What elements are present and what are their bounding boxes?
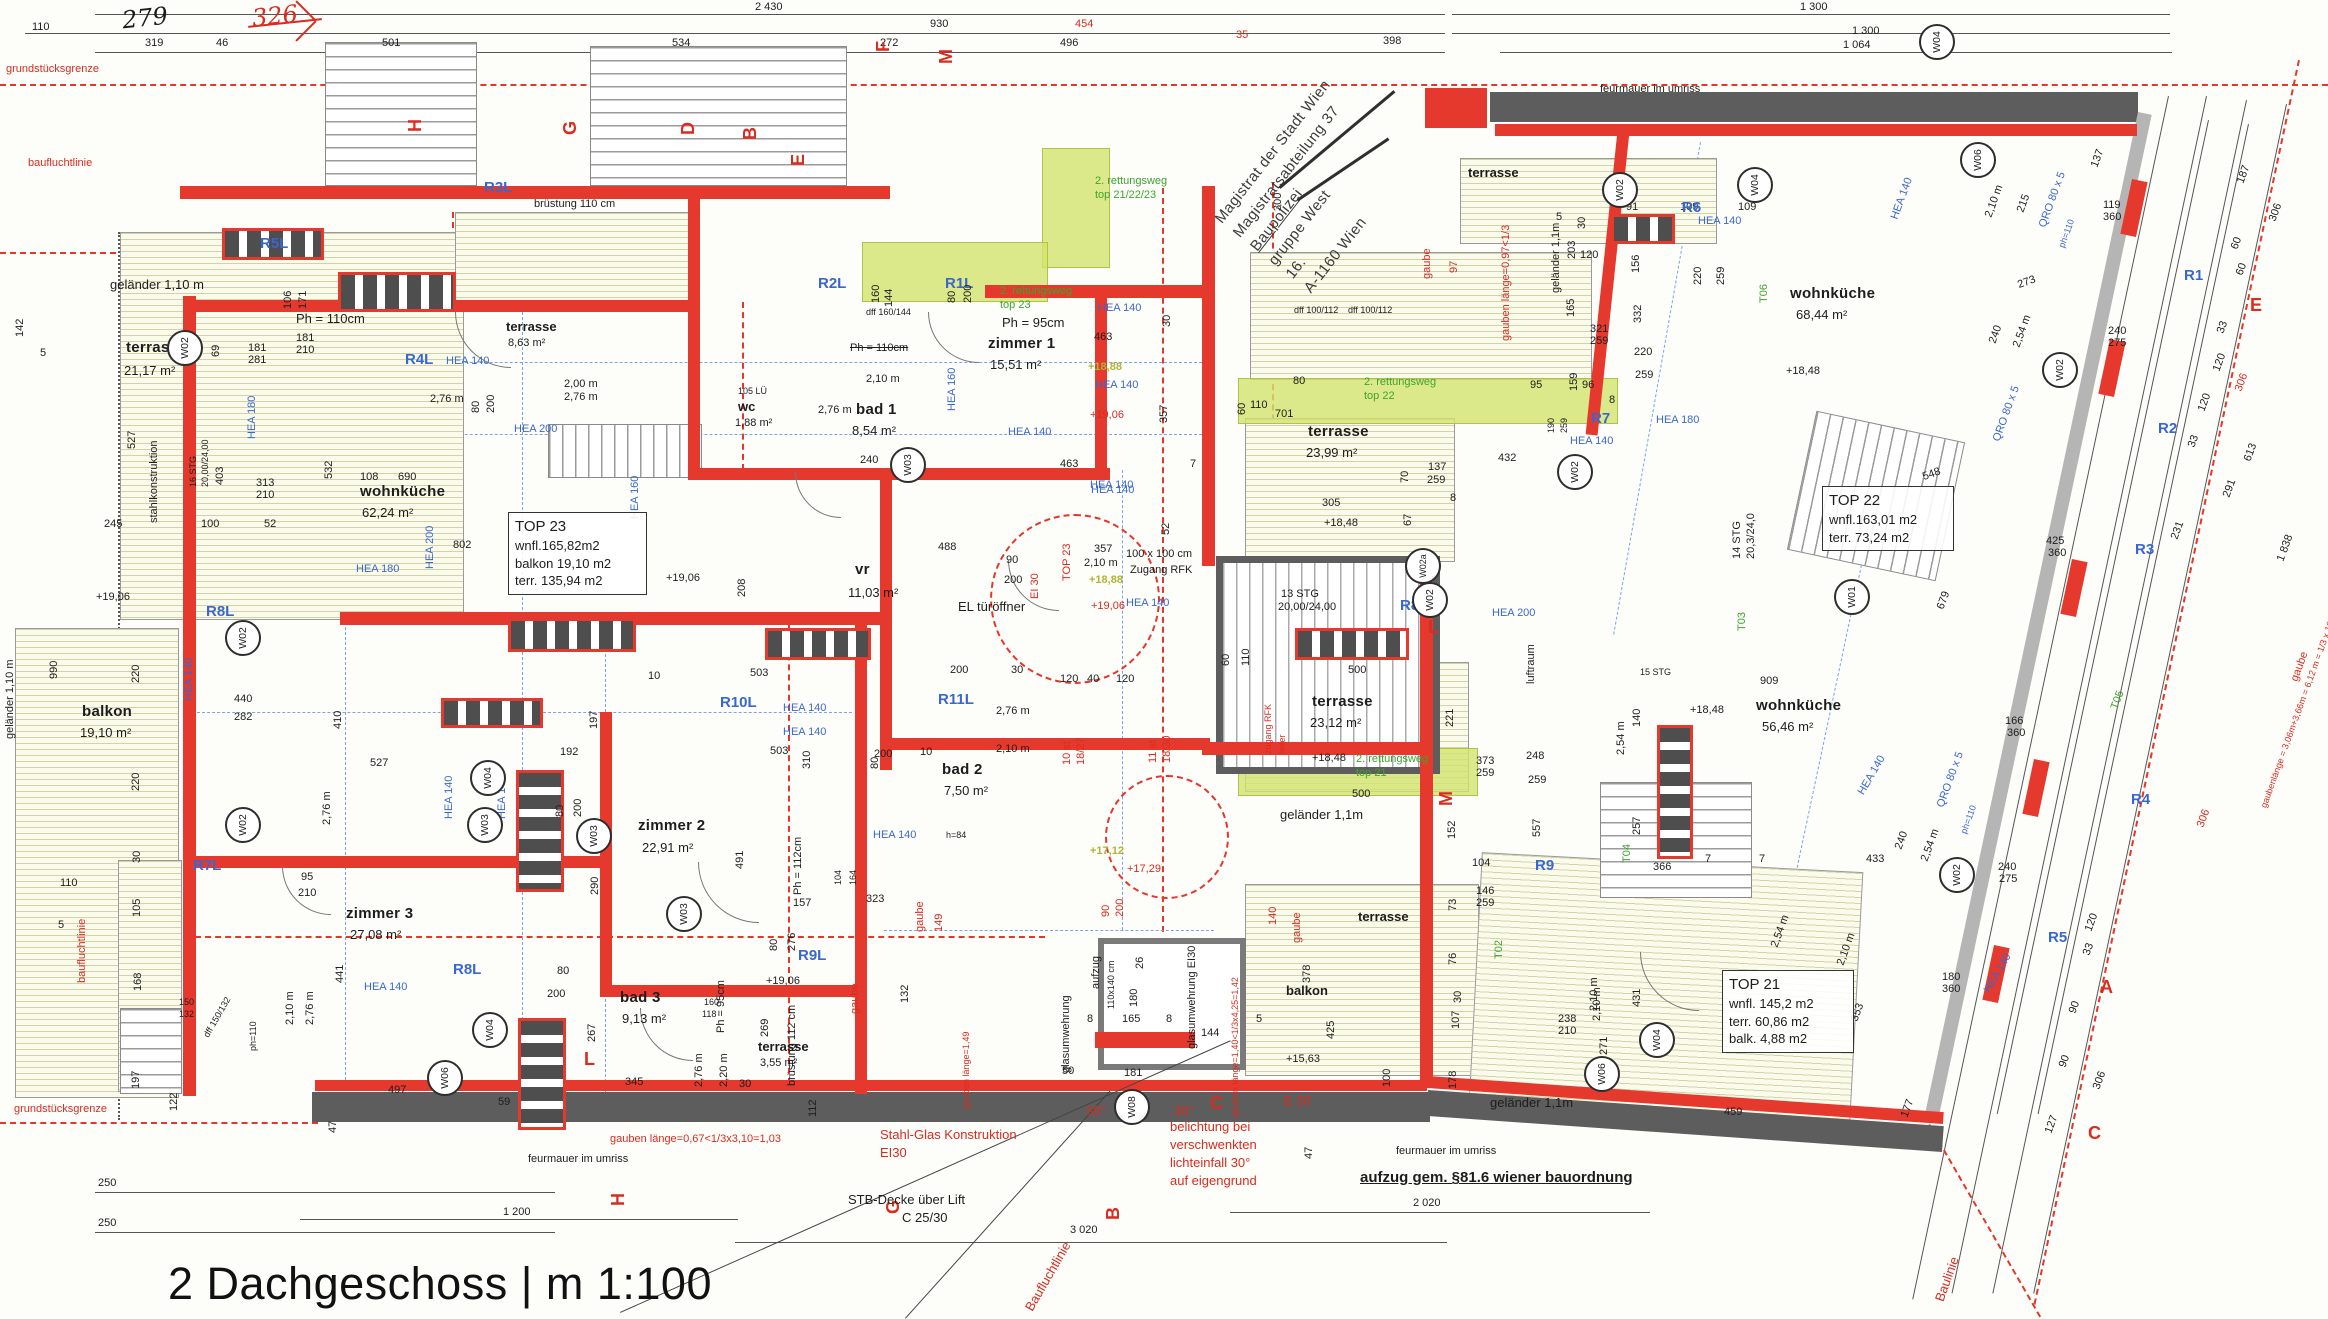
stair-label: 16 STG xyxy=(189,456,198,487)
dim-label: 2,00 m xyxy=(564,379,598,390)
room-area: 19,10 m² xyxy=(80,726,131,739)
terrace-hatch xyxy=(455,212,697,306)
dim-label: 2,10 m xyxy=(1984,184,2006,219)
room-name: terrasse xyxy=(758,1040,809,1053)
level-mark: +18,48 xyxy=(1690,705,1724,716)
dim-label: 120 xyxy=(2212,352,2229,373)
dim-label: 197 xyxy=(131,1071,142,1089)
beam-label: QRO 80 x 5 xyxy=(1936,751,1966,809)
dim-line xyxy=(95,1192,555,1193)
escape-route-note: top 21 xyxy=(1356,768,1387,779)
dim-label: 220 xyxy=(1634,347,1652,358)
beam-tag: R6 xyxy=(1682,200,1701,215)
dim-label: 110 xyxy=(1250,400,1268,411)
level-mark: +18,48 xyxy=(1312,753,1346,764)
window-band xyxy=(516,770,564,892)
fire-rating-label: E 30 xyxy=(1284,1094,1311,1107)
dim-label: 501 xyxy=(382,38,400,49)
dim-label: 690 xyxy=(398,472,416,483)
dim-label: 210 xyxy=(256,490,274,501)
dim-label: 463 xyxy=(1094,332,1112,343)
level-mark: +19,06 xyxy=(1090,410,1124,421)
dim-label: 432 xyxy=(1498,453,1516,464)
dim-label: 120 xyxy=(2084,912,2101,933)
axis-letter: M xyxy=(1437,791,1455,806)
dim-label: 250 xyxy=(98,1218,116,1229)
window-band xyxy=(338,272,456,312)
room-name: bad 2 xyxy=(942,762,983,777)
room-name: wohnküche xyxy=(360,484,445,499)
unit-area: balkon 19,10 m2 xyxy=(515,555,640,573)
dim-label: 532 xyxy=(324,461,335,479)
window-tag: W02 xyxy=(225,620,261,656)
dim-label: 360 xyxy=(2048,548,2066,559)
dim-label: 59 xyxy=(498,1097,510,1108)
dim-label: 200 xyxy=(874,749,892,760)
light-note: lichteinfall 30° xyxy=(1170,1156,1250,1169)
dim-label: 990 xyxy=(49,661,60,679)
boundary-line-red xyxy=(0,1122,318,1124)
level-mark: +18,88 xyxy=(1089,575,1123,586)
dim-label: 425 xyxy=(2046,536,2064,547)
dim-label: 73 xyxy=(1448,899,1459,911)
dim-label: 398 xyxy=(1383,36,1401,47)
dim-label: 220 xyxy=(131,665,142,683)
beam-label: QRO 80 x 5 xyxy=(1992,385,2022,443)
dim-label: 30 xyxy=(1453,991,1464,1003)
dim-label: 210 xyxy=(1558,1026,1576,1037)
dim-label: 166 xyxy=(2005,716,2023,727)
elevator-label: 110x140 cm xyxy=(1107,961,1116,1009)
dim-label: 231 xyxy=(2170,520,2187,541)
room-name: zimmer 1 xyxy=(988,336,1055,351)
dim-label: 366 xyxy=(1653,862,1671,873)
beam-label: HEA 180 xyxy=(1656,415,1699,426)
window-tag: W02 xyxy=(167,330,203,366)
beam-label: HEA 180 xyxy=(356,564,399,575)
parapet-label: Ph = 95cm xyxy=(1002,316,1065,329)
dim-label: 60 xyxy=(2235,262,2250,277)
dim-label: 2,54 m xyxy=(1616,721,1627,755)
dim-label: 181 xyxy=(1124,1068,1142,1079)
dim-label: 8 xyxy=(1450,493,1456,504)
dim-label: 137 xyxy=(1428,462,1446,473)
staircase xyxy=(590,46,847,186)
dim-label: 2,54 m xyxy=(1920,828,1942,863)
dim-label: 282 xyxy=(234,712,252,723)
construction-note: Stahl-Glas Konstruktion xyxy=(880,1128,1017,1141)
dim-label: 3 020 xyxy=(1070,1225,1098,1236)
dim-line xyxy=(25,33,1445,34)
dim-line xyxy=(1912,96,2169,1299)
dim-label: 180 xyxy=(1129,989,1140,1007)
room-name: wohnküche xyxy=(1790,286,1875,301)
room-name: terrasse xyxy=(1468,166,1519,179)
dim-label: 208 xyxy=(737,579,748,597)
dim-label: 144 xyxy=(1201,1028,1219,1039)
dim-label: 210 xyxy=(298,888,316,899)
dim-label: 323 xyxy=(866,894,884,905)
window-tag: W02a xyxy=(1405,548,1441,584)
dim-label: 7 xyxy=(1705,854,1711,865)
dim-label: 360 xyxy=(1942,984,1960,995)
dim-label: 67 xyxy=(1403,514,1414,526)
parapet-label: brüstung 110 cm xyxy=(534,199,615,210)
dim-label: 441 xyxy=(335,965,346,983)
room-area: 21,17 m² xyxy=(124,364,175,377)
window-tag: W03 xyxy=(467,807,503,843)
wall-segment xyxy=(688,300,700,480)
room-area: 22,91 m² xyxy=(642,841,693,854)
dim-label: 119 xyxy=(2103,200,2121,211)
room-name: vr xyxy=(855,562,870,577)
stair-label: 20,00/24,00 xyxy=(1278,602,1336,613)
unit-info-box: TOP 22 wnfl.163,01 m2 terr. 73,24 m2 xyxy=(1822,486,1954,551)
dim-label: 259 xyxy=(1427,475,1445,486)
escape-route-note: top 23 xyxy=(1000,300,1031,311)
light-note: belichtung bei xyxy=(1170,1120,1250,1133)
dim-label: 2,10 m xyxy=(1084,558,1118,569)
dim-label: 2,20 m xyxy=(719,1053,730,1087)
window-tag: W04 xyxy=(1919,24,1955,60)
handwritten-dim: 326 xyxy=(251,2,299,31)
room-area: 56,46 m² xyxy=(1762,720,1813,733)
dim-label: 200 xyxy=(547,989,565,1000)
dim-label: 250 xyxy=(98,1178,116,1189)
dim-label: 240 xyxy=(1998,862,2016,873)
dim-label: 215 xyxy=(2016,193,2033,214)
dim-label: 107 xyxy=(1451,1011,1462,1029)
room-area: 15,51 m² xyxy=(990,358,1041,371)
dim-label: 60 xyxy=(2230,236,2245,251)
beam-tag: R3L xyxy=(484,180,512,195)
access-label: zugang RFK xyxy=(1264,704,1273,754)
dim-label: 127 xyxy=(2044,1114,2061,1135)
dim-label: 132 xyxy=(179,1010,194,1019)
dim-label: 275 xyxy=(2108,338,2126,349)
window-band xyxy=(765,628,871,660)
dim-label: 106 xyxy=(283,291,294,309)
dim-label: 259 xyxy=(1590,336,1608,347)
dim-label: 46 xyxy=(216,38,228,49)
dim-label: 245 xyxy=(104,519,122,530)
beam-tag: R8L xyxy=(453,962,481,977)
dim-label: 105 xyxy=(132,899,143,917)
wall-segment xyxy=(1425,88,1487,128)
room-area: 68,44 m² xyxy=(1796,308,1847,321)
dim-label: 104 xyxy=(1472,858,1490,869)
dim-label: 220 xyxy=(131,773,142,791)
parapet-label: Ph = 112cm xyxy=(793,837,804,895)
access-label: Zugang RFK xyxy=(1130,565,1192,576)
dim-label: 276 xyxy=(787,933,798,951)
dim-label: 40 xyxy=(1087,674,1099,685)
room-area: 9,13 m² xyxy=(622,1012,666,1025)
dim-label: 144 xyxy=(884,289,895,307)
dim-label: 930 xyxy=(930,19,948,30)
dim-label: 90 xyxy=(2058,1054,2073,1069)
wall-segment xyxy=(855,742,867,1094)
window-band xyxy=(441,698,543,728)
level-mark: +19,06 xyxy=(96,592,130,603)
dim-label: 33 xyxy=(2216,320,2231,335)
dim-label: 613 xyxy=(2243,442,2260,463)
dim-label: 332 xyxy=(1633,305,1644,323)
dim-label: 1 300 xyxy=(1852,26,1880,37)
dim-label: 1 200 xyxy=(503,1207,531,1218)
dim-label: 142 xyxy=(15,319,26,337)
dim-label: 2,10 m xyxy=(866,374,900,385)
parapet-label: Ph = 110cm xyxy=(296,312,365,325)
dim-label: 440 xyxy=(234,694,252,705)
dim-label: 80 xyxy=(769,939,780,951)
dim-label: 459 xyxy=(1724,1107,1742,1118)
unit-area: balk. 4,88 m2 xyxy=(1729,1030,1847,1048)
stair-label: 18/27 xyxy=(1076,737,1087,765)
fire-rating-label: EI 30 xyxy=(1030,573,1041,599)
window-tag: W06 xyxy=(427,1060,463,1096)
escape-route-strip xyxy=(1042,148,1110,268)
dim-label: 345 xyxy=(625,1077,643,1088)
dim-label: 140 xyxy=(1632,709,1643,727)
stair-label: 20,00/24,00 xyxy=(201,439,210,487)
dim-label: 100 xyxy=(201,519,219,530)
skylight-label: dff 100/112 xyxy=(1348,306,1392,315)
dim-label: 33 xyxy=(2082,942,2097,957)
boundary-label: Baufluchtlinie xyxy=(1023,1240,1073,1313)
room-area: 11,03 m² xyxy=(848,586,898,599)
axis-letter: L xyxy=(1428,618,1439,636)
dim-label: 140 xyxy=(1268,907,1279,925)
room-area: 23,99 m² xyxy=(1306,446,1357,459)
dim-label: 156 xyxy=(1631,255,1642,273)
dim-label: 360 xyxy=(2103,212,2121,223)
angle-label: 30° xyxy=(1086,1104,1106,1117)
dim-label: 557 xyxy=(1532,819,1543,837)
unit-info-box: TOP 23 wnfl.165,82m2 balkon 19,10 m2 ter… xyxy=(508,512,647,595)
level-mark: +18,48 xyxy=(1786,366,1820,377)
window-tag: W02 xyxy=(1412,582,1448,618)
dim-label: 500 xyxy=(1348,665,1366,676)
dim-label: 120 xyxy=(2197,392,2214,413)
room-name: bad 1 xyxy=(856,402,897,417)
axis-letter: H xyxy=(406,119,424,132)
beam-label: HEA 140 xyxy=(783,727,826,738)
dim-label: 47 xyxy=(1304,1147,1315,1159)
dim-label: 97 xyxy=(1449,261,1460,273)
beam-label: HEA 160 xyxy=(947,368,958,411)
wall-segment xyxy=(688,199,700,300)
structure-label: stahlkonstruktion xyxy=(149,440,160,523)
dim-label: 1 300 xyxy=(1800,2,1828,13)
beam-label: HEA 140 xyxy=(1008,427,1051,438)
dim-label: 267 xyxy=(587,1024,598,1042)
beam-label: HEA 140 xyxy=(446,356,489,367)
dim-label: 679 xyxy=(1936,590,1953,611)
door-swing xyxy=(698,862,759,923)
dormer-line xyxy=(2038,124,2249,1114)
beam-label: HEA 140 xyxy=(1890,176,1915,221)
dim-label: 2,76 m xyxy=(996,706,1030,717)
dim-label: 259 xyxy=(1635,370,1653,381)
axis-letter: E xyxy=(2250,296,2262,314)
dormer-label: gaube xyxy=(1422,248,1433,279)
railing-label: geländer 1,1m xyxy=(1280,808,1363,821)
dormer-note: gauben länge=0,67<1/3x3,10=1,03 xyxy=(610,1134,781,1145)
dim-label: 60 xyxy=(1237,403,1248,415)
beam-tag: R5L xyxy=(260,236,288,251)
dim-label: 259 xyxy=(1476,768,1494,779)
window-tag: W01 xyxy=(1834,579,1870,615)
dim-line xyxy=(95,1232,555,1233)
dim-label: 200 xyxy=(573,799,584,817)
dim-label: 410 xyxy=(333,711,344,729)
level-mark: +15,63 xyxy=(1286,1054,1320,1065)
dim-line xyxy=(1500,52,2172,53)
dim-label: 160 xyxy=(871,285,882,303)
dormer-note: gauben länge=0,97<1/3 xyxy=(1501,225,1512,341)
room-name: terrasse xyxy=(506,320,557,333)
dim-label: 909 xyxy=(1760,676,1778,687)
glazing-label: glasumwehrung EI30 xyxy=(1187,946,1198,1049)
parapet-label: Ph = 95cm xyxy=(716,980,727,1033)
dim-label: 5 xyxy=(40,348,46,359)
room-name: zimmer 3 xyxy=(346,906,413,921)
staircase xyxy=(325,42,477,186)
dim-label: 149 xyxy=(934,914,945,932)
facade-pier xyxy=(2022,759,2049,817)
dim-label: 5 xyxy=(1256,1014,1262,1025)
beam-label: HEA 200 xyxy=(1492,608,1535,619)
window-band xyxy=(1295,628,1409,660)
dim-label: 200 xyxy=(963,285,974,303)
unit-area: terr. 60,86 m2 xyxy=(1729,1013,1847,1031)
beam-label: HEA 140 xyxy=(1090,480,1133,491)
fire-wall xyxy=(1490,92,2138,122)
beam-label: HEA 140 xyxy=(1095,380,1138,391)
construction-note: C 25/30 xyxy=(902,1211,948,1224)
level-mark: +19,06 xyxy=(666,573,700,584)
window-band xyxy=(508,618,636,652)
beam-label: HEA 140 xyxy=(783,703,826,714)
axis-letter: A xyxy=(2100,978,2113,996)
dim-label: 35 xyxy=(1236,30,1248,41)
dim-label: 157 xyxy=(793,898,811,909)
beam-label: HEA 140 xyxy=(873,830,916,841)
beam-tag: R9L xyxy=(798,948,826,963)
dim-label: 164 xyxy=(849,870,858,885)
dim-label: 100 xyxy=(1382,1069,1393,1087)
railing-label: geländer 1,1m xyxy=(1490,1096,1573,1109)
dim-label: 240 xyxy=(1988,324,2005,345)
axis-letter: D xyxy=(679,122,697,135)
door-swing xyxy=(795,472,841,518)
dormer-label: gaube xyxy=(1292,912,1303,943)
wall-segment xyxy=(1202,186,1215,566)
dim-label: 52 xyxy=(1161,523,1172,535)
dim-label: 190 xyxy=(1547,418,1556,433)
dim-label: 240 xyxy=(1894,830,1911,851)
dim-label: 30 xyxy=(1577,217,1588,229)
dim-line xyxy=(735,1242,1447,1243)
unit-area: wnfl.163,01 m2 xyxy=(1829,511,1947,529)
dim-label: 8 xyxy=(1609,395,1615,406)
dim-label: 80 xyxy=(555,805,566,817)
dim-label: 306 xyxy=(2268,202,2285,223)
axis-letter: C xyxy=(1210,1094,1223,1112)
dim-label: 109 xyxy=(1738,202,1756,213)
beam-line xyxy=(522,302,523,1090)
unit-area: wnfl.165,82m2 xyxy=(515,537,640,555)
dim-label: 70 xyxy=(1400,471,1411,483)
dim-label: 90 xyxy=(1101,905,1112,917)
dim-label: 90 xyxy=(2068,1000,2083,1015)
dim-label: 220 xyxy=(1693,267,1704,285)
elevator-note: aufzug gem. §81.6 wiener bauordnung xyxy=(1360,1170,1633,1185)
dim-label: 33 xyxy=(2187,434,2202,449)
dim-label: 527 xyxy=(127,431,138,449)
room-area: 7,50 m² xyxy=(944,784,988,797)
window-tag: W02 xyxy=(2042,352,2078,388)
dim-label: 357 xyxy=(1094,544,1112,555)
beam-label: HEA 200 xyxy=(514,424,557,435)
dim-label: 181 xyxy=(296,333,314,344)
dim-label: 80 xyxy=(557,966,569,977)
boundary-line-red xyxy=(2034,60,2300,1305)
dim-label: 122 xyxy=(169,1093,180,1111)
beam-tag: R4L xyxy=(405,352,433,367)
dim-label: 180 xyxy=(1942,972,1960,983)
dim-label: 30 xyxy=(132,851,143,863)
beam-label: HEA 140 xyxy=(1570,436,1613,447)
dim-label: 1 064 xyxy=(1843,40,1871,51)
elevator-shaft xyxy=(1098,938,1246,1070)
dim-label: 152 xyxy=(1447,821,1458,839)
dim-label: 120 xyxy=(1116,674,1134,685)
escape-route-note: 2. rettungsweg xyxy=(1095,176,1167,187)
beam-label: HEA 140 xyxy=(1698,216,1741,227)
window-tag: W02 xyxy=(1602,172,1638,208)
dim-label: 259 xyxy=(1716,267,1727,285)
boundary-label: baufluchtlinie xyxy=(77,919,88,983)
dim-label: 95 xyxy=(301,872,313,883)
beam-label: HEA 140 xyxy=(1126,598,1169,609)
dim-label: 80 xyxy=(1293,376,1305,387)
dim-label: 290 xyxy=(590,877,601,895)
dim-label: 50 xyxy=(1062,1066,1074,1077)
dim-label: 373 xyxy=(1476,756,1494,767)
beam-tag: R4 xyxy=(2131,792,2150,807)
beam-tag: R1 xyxy=(2184,268,2203,283)
construction-note: STB-Decke über Lift xyxy=(848,1193,965,1206)
room-area: 8,54 m² xyxy=(852,424,896,437)
axis-letter: C xyxy=(2088,1124,2101,1142)
skylight-label: dff 100/112 xyxy=(1294,306,1338,315)
beam-tag: R7L xyxy=(193,858,221,873)
dim-label: 168 xyxy=(133,973,144,991)
dim-label: 90 xyxy=(1006,555,1018,566)
stair-label: 11 st xyxy=(1148,740,1159,763)
room-name: wohnküche xyxy=(1756,698,1841,713)
window-tag: W03 xyxy=(890,447,926,483)
dim-label: 30 xyxy=(739,1079,751,1090)
boundary-label: Baulinie xyxy=(1933,1255,1961,1303)
dim-label: 500 xyxy=(1352,789,1370,800)
dim-label: 181 xyxy=(248,343,266,354)
dim-label: 1 838 xyxy=(2276,533,2296,563)
window-tag: W06 xyxy=(1960,142,1996,178)
dim-label: 112 xyxy=(808,1099,819,1117)
